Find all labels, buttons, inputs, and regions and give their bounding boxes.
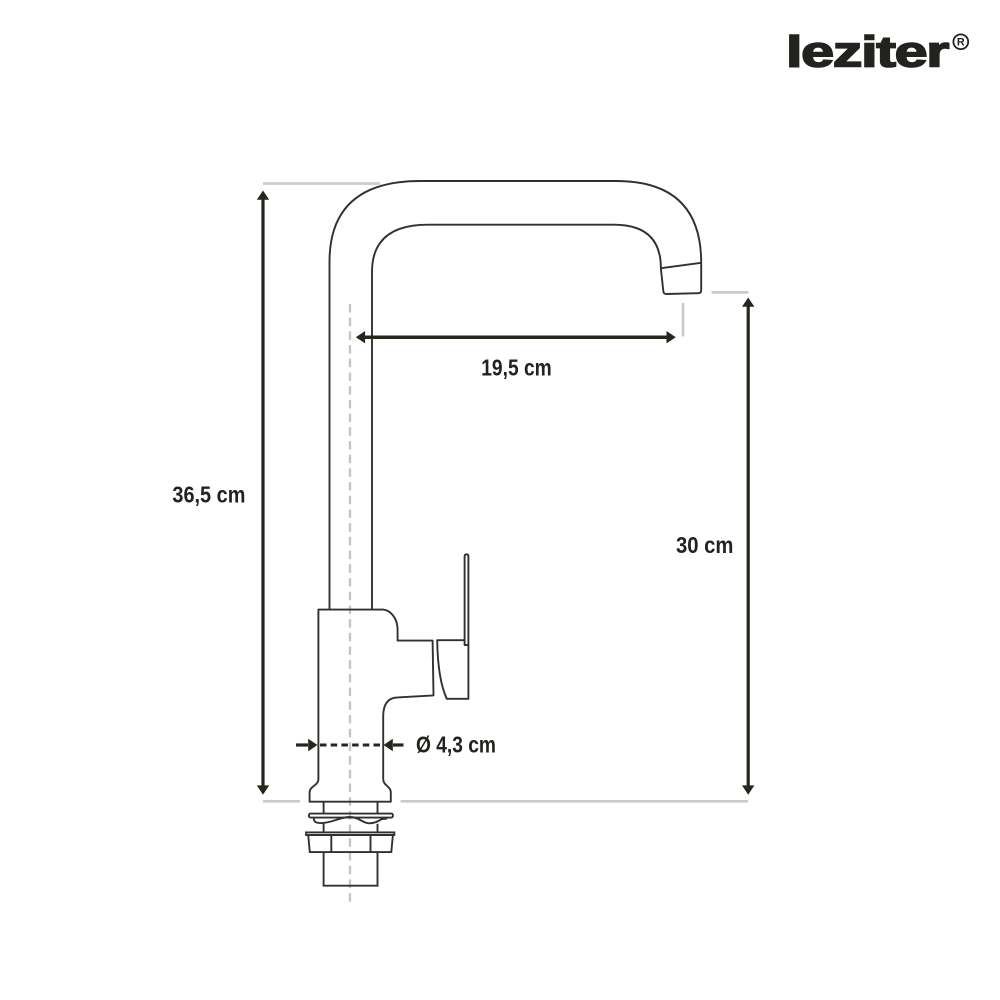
svg-text:Ø 4,3 cm: Ø 4,3 cm (416, 731, 496, 757)
svg-text:36,5 cm: 36,5 cm (172, 482, 245, 508)
svg-text:R: R (957, 37, 965, 49)
svg-text:30 cm: 30 cm (676, 532, 734, 558)
svg-text:19,5 cm: 19,5 cm (481, 354, 552, 380)
svg-text:leziter: leziter (786, 27, 949, 76)
